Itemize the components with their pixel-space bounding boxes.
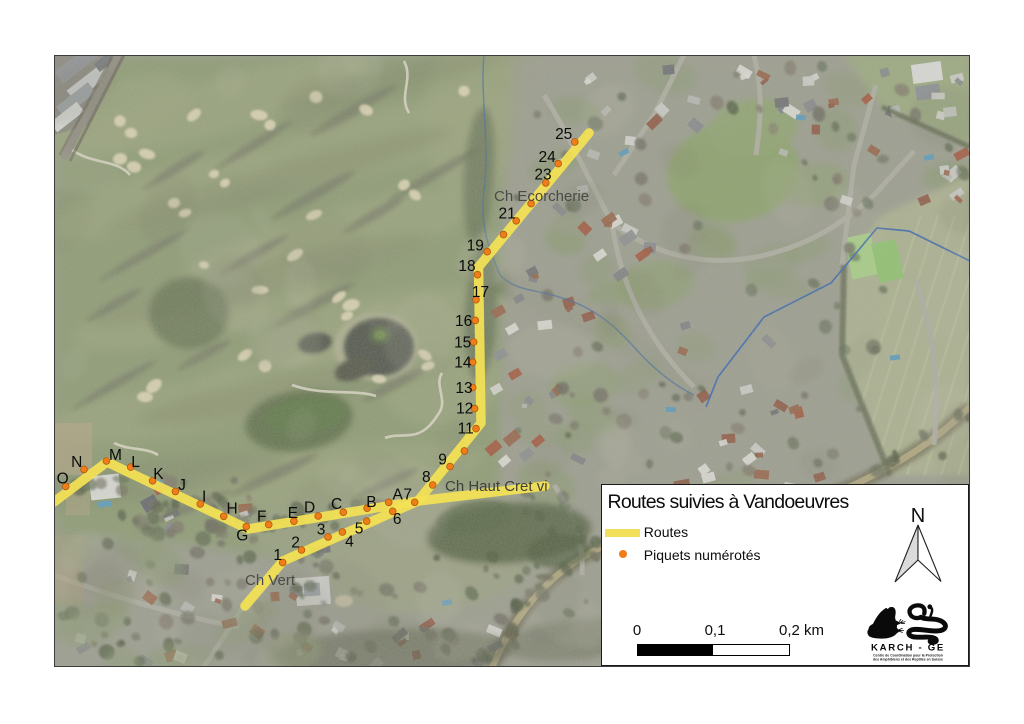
- svg-text:H: H: [226, 500, 237, 517]
- svg-text:21: 21: [498, 206, 515, 223]
- svg-text:6: 6: [393, 511, 402, 528]
- svg-text:15: 15: [454, 334, 471, 351]
- svg-text:J: J: [178, 477, 186, 494]
- svg-text:Ch Haut Cret vi: Ch Haut Cret vi: [445, 478, 548, 495]
- svg-text:24: 24: [538, 149, 556, 166]
- svg-text:C: C: [331, 496, 342, 513]
- svg-text:B: B: [366, 494, 376, 511]
- svg-text:18: 18: [458, 258, 475, 275]
- svg-text:25: 25: [555, 126, 572, 143]
- svg-text:8: 8: [422, 469, 431, 486]
- svg-text:M: M: [109, 447, 122, 464]
- svg-text:I: I: [202, 488, 206, 505]
- svg-text:19: 19: [467, 238, 484, 255]
- svg-text:4: 4: [345, 533, 354, 550]
- svg-text:G: G: [236, 528, 248, 545]
- svg-text:12: 12: [456, 400, 473, 417]
- svg-text:K: K: [153, 466, 164, 483]
- svg-text:23: 23: [534, 167, 551, 184]
- svg-text:2: 2: [291, 534, 300, 551]
- svg-text:3: 3: [317, 521, 326, 538]
- svg-text:Ch Ecorcherie: Ch Ecorcherie: [494, 188, 589, 205]
- svg-text:17: 17: [472, 284, 489, 301]
- svg-text:11: 11: [458, 420, 474, 437]
- svg-text:1: 1: [273, 547, 282, 564]
- svg-text:N: N: [71, 454, 82, 471]
- svg-text:KARCH - GE: KARCH - GE: [871, 642, 945, 653]
- svg-text:16: 16: [455, 313, 472, 330]
- svg-text:14: 14: [454, 355, 472, 372]
- svg-text:D: D: [304, 499, 315, 516]
- svg-text:13: 13: [455, 380, 472, 397]
- svg-text:L: L: [131, 454, 140, 471]
- svg-text:E: E: [288, 505, 298, 522]
- svg-text:N: N: [911, 505, 925, 527]
- svg-text:7: 7: [403, 487, 412, 504]
- svg-text:Ch Vert: Ch Vert: [245, 572, 296, 589]
- svg-text:F: F: [257, 508, 266, 525]
- svg-text:des Amphibiens et des Reptiles: des Amphibiens et des Reptiles en Suisse: [873, 657, 943, 661]
- svg-text:A: A: [393, 487, 404, 504]
- svg-text:O: O: [57, 471, 69, 488]
- svg-text:9: 9: [438, 452, 447, 469]
- svg-text:5: 5: [355, 521, 364, 538]
